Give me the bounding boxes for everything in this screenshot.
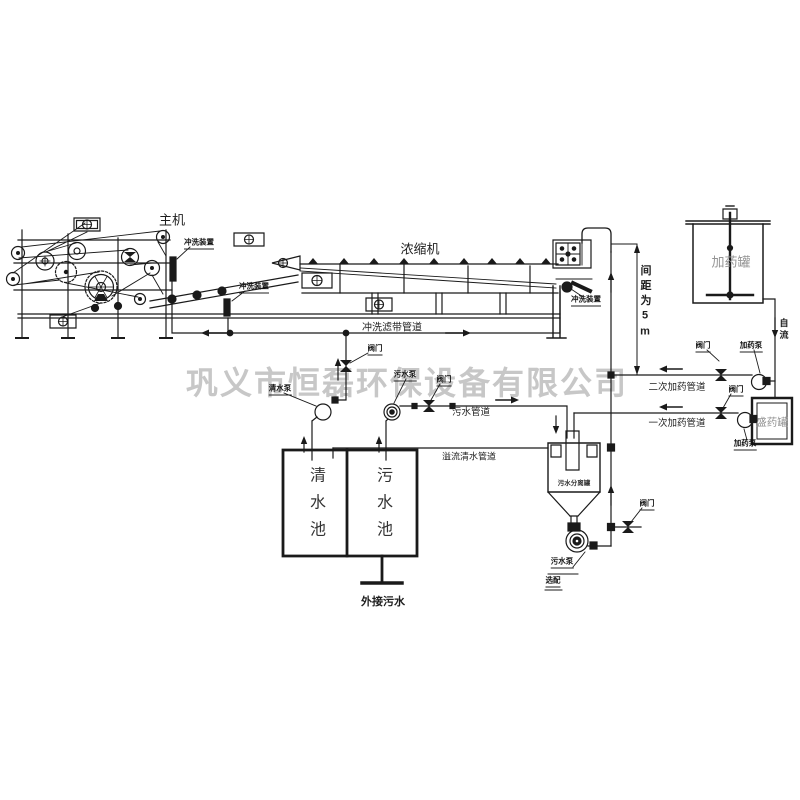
- overflow-pipe-label: 溢流清水管道: [442, 450, 496, 463]
- dosing-pump-label-2: 加药泵: [734, 438, 757, 451]
- secondary-dosing-pipe-label: 二次加药管道: [648, 379, 705, 393]
- external-sewage-label: 外接污水: [361, 593, 405, 609]
- separator-label: 污水分离罐: [558, 477, 591, 487]
- sludge-feed-riser: [582, 228, 642, 546]
- diagram-linework: [0, 0, 800, 800]
- wash-device-label-2: 冲洗装置: [239, 281, 269, 294]
- dimension-line: [611, 244, 640, 375]
- process-flow-diagram: 巩义市恒磊环保设备有限公司: [0, 0, 800, 800]
- valve-label-wash-riser: 阀门: [368, 343, 383, 356]
- clean-pump-label: 清水泵: [269, 383, 292, 396]
- dosing-tank-label: 加药罐: [711, 252, 750, 271]
- valve-label-drain: 阀门: [640, 498, 655, 511]
- main-press-machine: [7, 218, 561, 338]
- primary-dosing-pipe-label: 一次加药管道: [648, 415, 705, 429]
- valve-label-secondary: 阀门: [696, 340, 711, 353]
- belt-wash-pipe-label: 冲洗滤带管道: [362, 319, 422, 334]
- valve-label-sewage-pipe: 阀门: [437, 374, 452, 387]
- sewage-tank-label: 污水池: [370, 467, 394, 548]
- holding-tank-label: 盛药罐: [756, 415, 788, 430]
- valve-label-primary: 阀门: [729, 384, 744, 397]
- clean-tank-label: 清水池: [303, 467, 327, 548]
- separator-pump-label: 污水泵: [551, 556, 574, 569]
- sewage-pump-label: 污水泵: [394, 369, 417, 382]
- wash-device-label-1: 冲洗装置: [184, 237, 214, 250]
- wash-device-label-3: 冲洗装置: [571, 294, 601, 307]
- thickener-label: 浓缩机: [400, 239, 439, 258]
- dosing-tank: [686, 206, 778, 398]
- pump-station: [284, 333, 567, 460]
- dosing-pump-label-1: 加药泵: [740, 340, 763, 353]
- gravity-flow-label: 自流: [778, 318, 791, 342]
- main-press-label: 主机: [159, 210, 185, 229]
- sewage-pipe-label: 污水管道: [452, 404, 490, 418]
- spacing-note: 间距为5m: [637, 265, 653, 342]
- optional-label: 选配: [546, 575, 561, 588]
